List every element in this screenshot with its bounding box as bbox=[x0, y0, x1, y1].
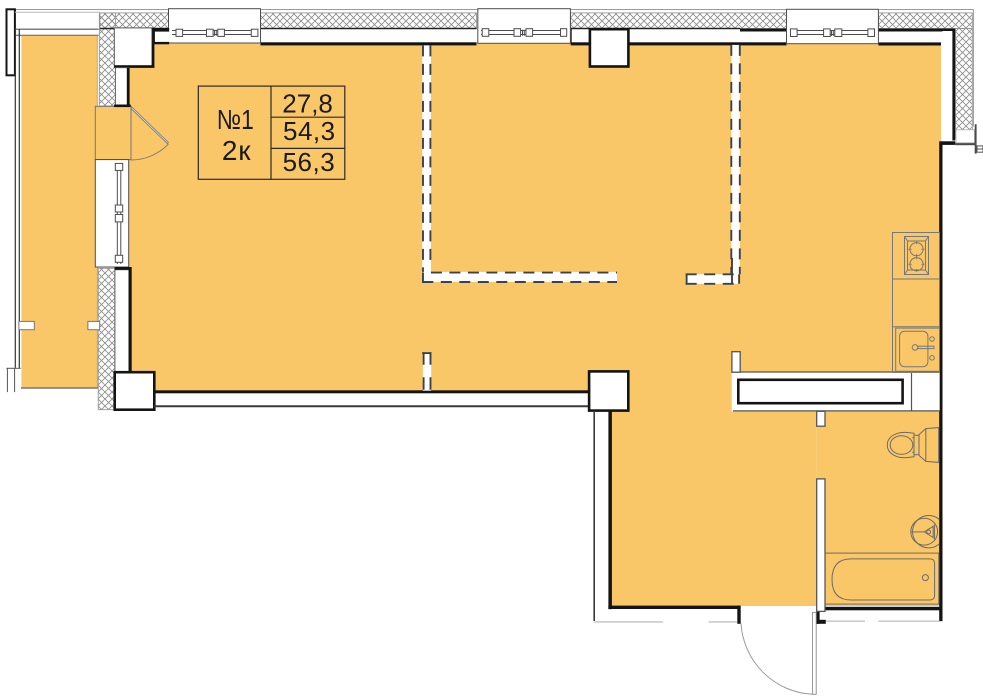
svg-text:56,3: 56,3 bbox=[283, 147, 336, 177]
svg-text:54,3: 54,3 bbox=[283, 116, 336, 146]
svg-text:№1: №1 bbox=[217, 104, 254, 135]
svg-text:2к: 2к bbox=[222, 135, 251, 166]
svg-text:27,8: 27,8 bbox=[282, 88, 333, 118]
